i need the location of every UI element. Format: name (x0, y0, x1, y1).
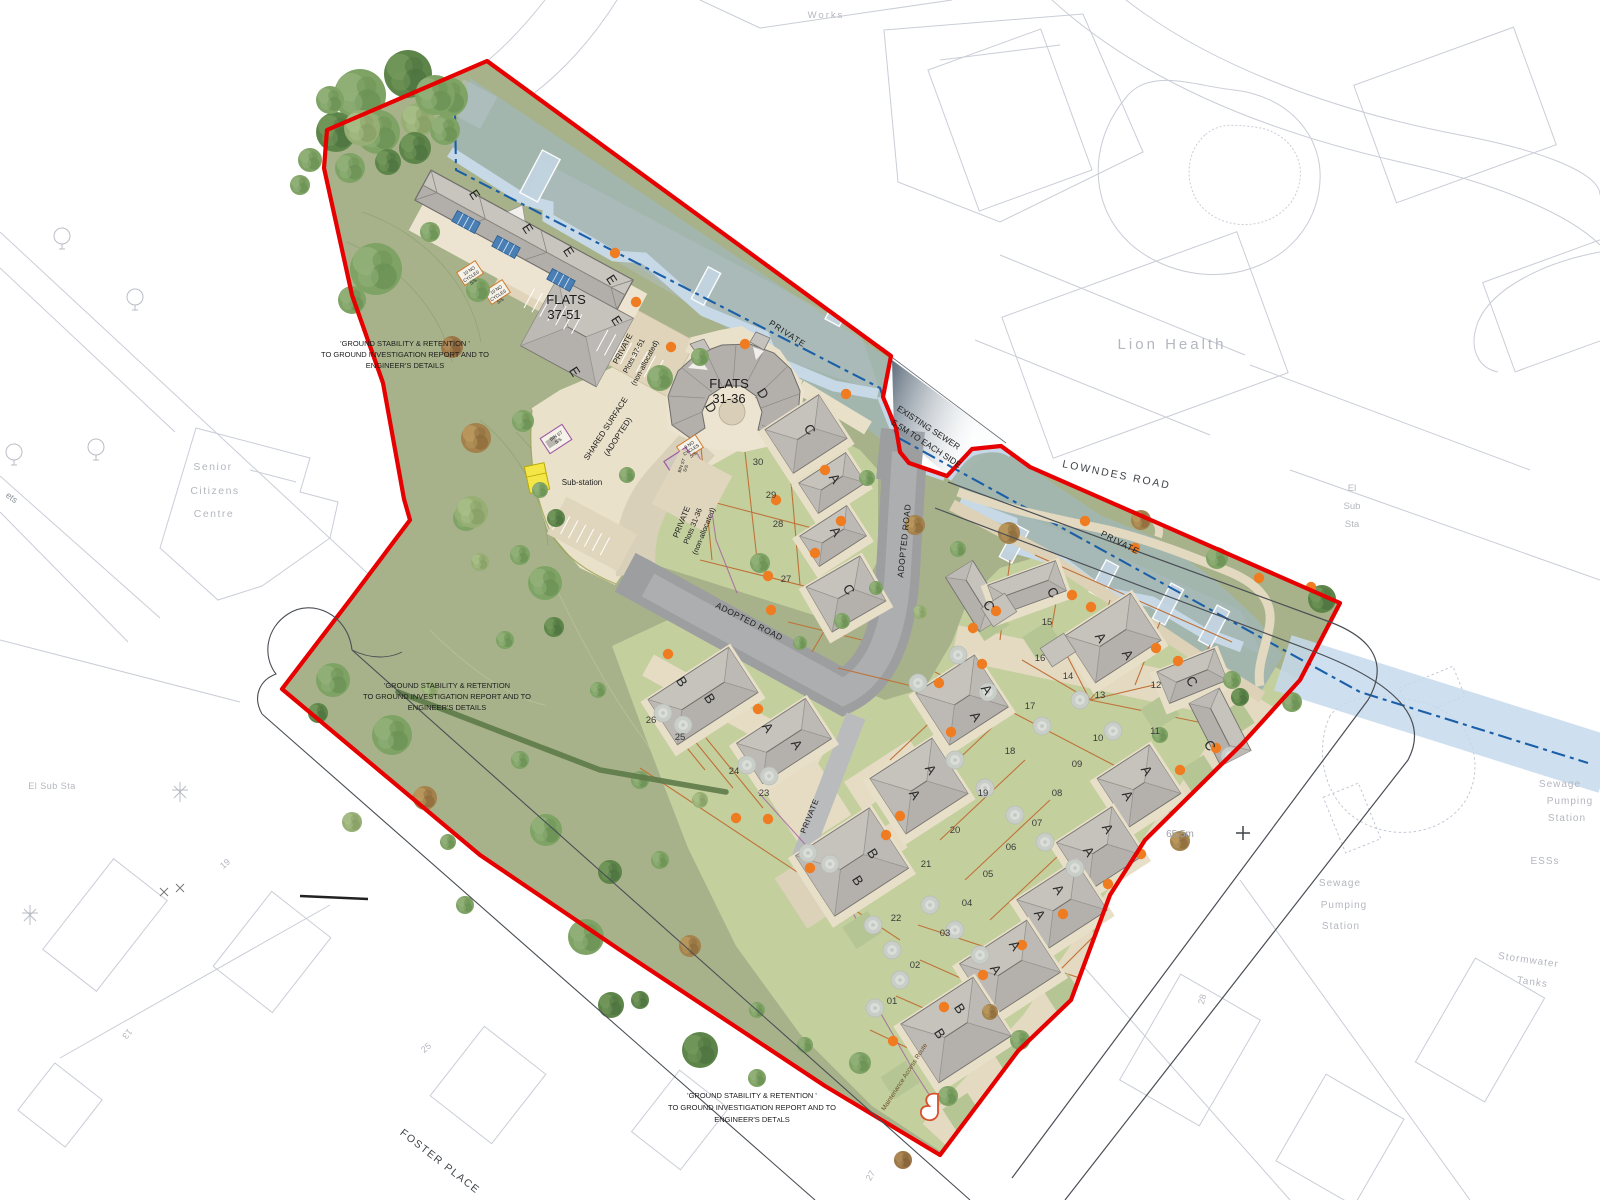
svg-text:Sub: Sub (1344, 501, 1361, 512)
svg-text:02: 02 (910, 960, 921, 971)
svg-text:05: 05 (983, 869, 994, 880)
svg-text:TO GROUND INVESTIGATION REPORT: TO GROUND INVESTIGATION REPORT AND TO (668, 1103, 836, 1112)
svg-text:Station: Station (1548, 813, 1586, 824)
svg-text:'GROUND STABILITY & RETENTION: 'GROUND STABILITY & RETENTION ' (687, 1091, 817, 1100)
svg-text:FLATS: FLATS (546, 292, 586, 307)
svg-text:El: El (1348, 483, 1356, 494)
svg-text:ENGINEER'S DETʌLS: ENGINEER'S DETʌLS (714, 1115, 790, 1124)
svg-text:El Sub Sta: El Sub Sta (28, 781, 76, 791)
svg-text:27: 27 (781, 574, 792, 585)
svg-text:Centre: Centre (194, 508, 235, 520)
svg-text:06: 06 (1006, 842, 1017, 853)
svg-text:22: 22 (891, 913, 902, 924)
svg-text:24: 24 (729, 766, 740, 777)
svg-text:'GROUND STABILITY & RETENTION: 'GROUND STABILITY & RETENTION ' (340, 339, 470, 348)
svg-text:08: 08 (1052, 788, 1063, 799)
svg-text:Sta: Sta (1345, 519, 1360, 530)
svg-text:28: 28 (773, 519, 784, 530)
svg-text:'GROUND STABILITY & RETENTION: 'GROUND STABILITY & RETENTION (384, 681, 510, 690)
svg-text:19: 19 (978, 788, 989, 799)
svg-text:29: 29 (766, 490, 777, 501)
svg-text:23: 23 (759, 788, 770, 799)
svg-text:01: 01 (887, 996, 898, 1007)
svg-text:04: 04 (962, 898, 973, 909)
svg-text:11: 11 (1150, 726, 1160, 737)
svg-text:Pumping: Pumping (1547, 796, 1593, 807)
svg-text:Sub-station: Sub-station (562, 478, 602, 487)
svg-text:Lion Health: Lion Health (1118, 336, 1227, 353)
svg-text:20: 20 (950, 825, 961, 836)
svg-text:09: 09 (1072, 759, 1083, 770)
svg-text:30: 30 (753, 457, 764, 468)
svg-text:Works: Works (808, 10, 845, 21)
svg-text:12: 12 (1151, 680, 1162, 691)
svg-text:25: 25 (675, 732, 686, 743)
svg-text:Senior: Senior (193, 461, 232, 473)
svg-text:TO GROUND INVESTIGATION REPORT: TO GROUND INVESTIGATION REPORT AND TO (363, 692, 531, 701)
svg-text:10: 10 (1093, 733, 1104, 744)
svg-text:Pumping: Pumping (1321, 900, 1367, 911)
svg-text:03: 03 (940, 928, 951, 939)
svg-text:13: 13 (1095, 690, 1106, 701)
svg-text:ENGINEER'S DETAILS: ENGINEER'S DETAILS (408, 703, 486, 712)
svg-text:65.5m: 65.5m (1166, 829, 1194, 840)
svg-text:21: 21 (921, 859, 932, 870)
svg-text:18: 18 (1005, 746, 1016, 757)
svg-text:26: 26 (646, 715, 657, 726)
svg-text:ESSs: ESSs (1530, 856, 1559, 867)
svg-text:Station: Station (1322, 921, 1360, 932)
svg-text:07: 07 (1032, 818, 1043, 829)
svg-text:37-51: 37-51 (547, 307, 580, 322)
svg-text:16: 16 (1035, 653, 1046, 664)
svg-text:14: 14 (1063, 671, 1074, 682)
svg-text:Sewage: Sewage (1539, 779, 1581, 790)
svg-text:TO GROUND INVESTIGATION REPORT: TO GROUND INVESTIGATION REPORT AND TO (321, 350, 489, 359)
svg-text:FLATS: FLATS (709, 376, 749, 391)
svg-text:15: 15 (1042, 617, 1053, 628)
svg-text:17: 17 (1025, 701, 1036, 712)
svg-text:Sewage: Sewage (1319, 878, 1361, 889)
svg-text:ENGINEER'S DETAILS: ENGINEER'S DETAILS (366, 361, 444, 370)
svg-text:Citizens: Citizens (190, 485, 239, 497)
